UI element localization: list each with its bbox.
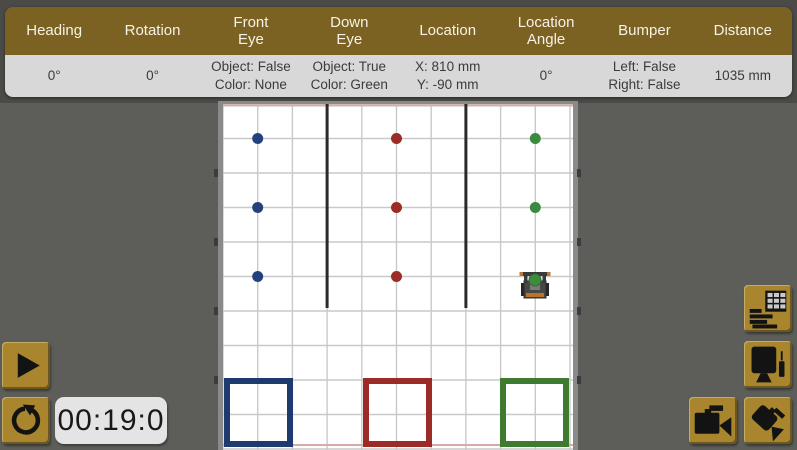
field-wall-joint [577,169,581,177]
tilted-camera-button[interactable] [744,397,792,444]
field-wall-joint [214,169,218,177]
sensor-header-location: Location [399,7,497,55]
sensor-header-row: Heading Rotation Front Eye Down Eye Loca… [5,7,792,55]
sensor-value-front-eye: Object: False Color: None [202,55,300,97]
field-wall-joint [577,307,581,315]
sensor-dashboard-button[interactable] [744,285,792,332]
video-camera-button[interactable] [689,397,737,444]
monitor-pen-button[interactable] [744,341,792,388]
field-wall-joint [577,238,581,246]
reset-icon [4,399,48,442]
sensor-header-location-angle: Location Angle [497,7,595,55]
field-wall-joint [214,307,218,315]
sensor-header-front-eye: Front Eye [202,7,300,55]
sensor-value-rotation: 0° [103,55,201,97]
sensor-value-bumper: Left: False Right: False [595,55,693,97]
sensor-header-bumper: Bumper [595,7,693,55]
robot-sprite [520,272,551,298]
sensor-value-down-eye: Object: True Color: Green [300,55,398,97]
reset-button[interactable] [2,397,50,444]
held-green-disk [529,274,541,286]
sensor-dashboard-icon [746,287,790,330]
video-camera-icon [691,399,735,442]
play-icon [4,344,48,387]
timer-display: 00:19:0 [55,397,167,444]
sensor-header-heading: Heading [5,7,103,55]
sensor-value-row: 0° 0° Object: False Color: None Object: … [5,55,792,97]
sensor-value-distance: 1035 mm [694,55,792,97]
field-wall-joint [214,376,218,384]
monitor-pen-icon [746,343,790,386]
sensor-value-location: X: 810 mm Y: -90 mm [399,55,497,97]
field-wall-joint [577,376,581,384]
sensor-header-rotation: Rotation [103,7,201,55]
playground-field [223,104,573,450]
play-button[interactable] [2,342,50,389]
sensor-header-down-eye: Down Eye [300,7,398,55]
tilted-camera-icon [746,399,790,442]
robot-simulator-screen: Heading Rotation Front Eye Down Eye Loca… [0,0,797,450]
sensor-value-location-angle: 0° [497,55,595,97]
sensor-dashboard-panel: Heading Rotation Front Eye Down Eye Loca… [5,7,792,97]
sensor-value-heading: 0° [5,55,103,97]
sensor-header-distance: Distance [694,7,792,55]
field-wall-joint [214,238,218,246]
